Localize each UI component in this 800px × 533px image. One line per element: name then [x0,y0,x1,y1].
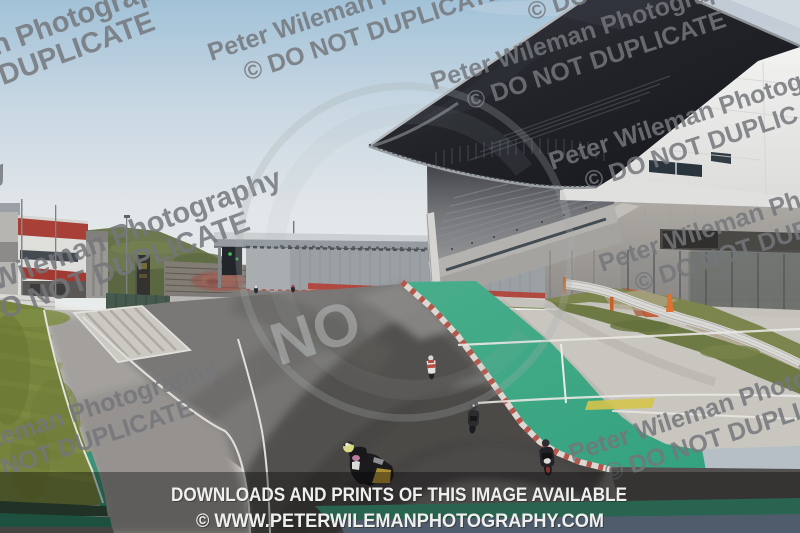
svg-text:DOWNLOADS AND PRINTS OF THIS I: DOWNLOADS AND PRINTS OF THIS IMAGE AVAIL… [171,484,627,506]
svg-text:© WWW.PETERWILEMANPHOTOGRAPHY.: © WWW.PETERWILEMANPHOTOGRAPHY.COM [196,510,604,532]
